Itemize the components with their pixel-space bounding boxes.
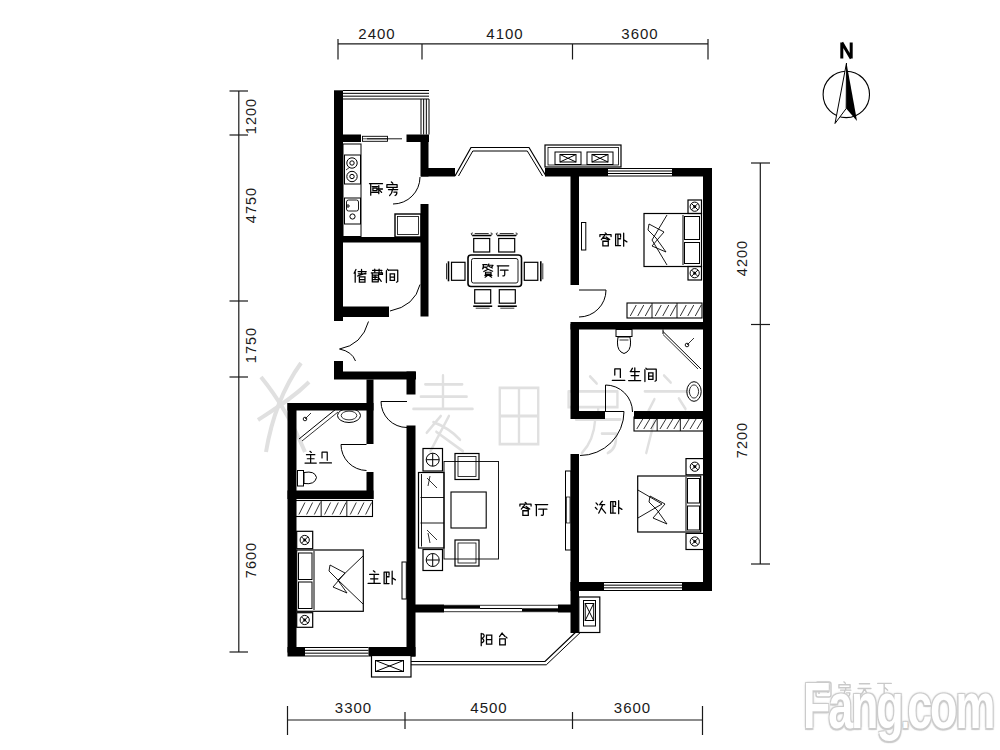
svg-text:1750: 1750 xyxy=(243,327,259,363)
svg-text:4500: 4500 xyxy=(470,699,507,716)
svg-text:3300: 3300 xyxy=(335,699,372,716)
svg-text:7600: 7600 xyxy=(243,542,259,578)
svg-text:2400: 2400 xyxy=(358,25,395,42)
svg-text:1200: 1200 xyxy=(243,98,259,134)
svg-text:4200: 4200 xyxy=(734,240,750,276)
svg-text:7200: 7200 xyxy=(734,422,750,458)
svg-text:4750: 4750 xyxy=(243,187,259,223)
svg-text:3600: 3600 xyxy=(614,699,651,716)
svg-text:3600: 3600 xyxy=(621,25,658,42)
svg-text:4100: 4100 xyxy=(486,25,523,42)
